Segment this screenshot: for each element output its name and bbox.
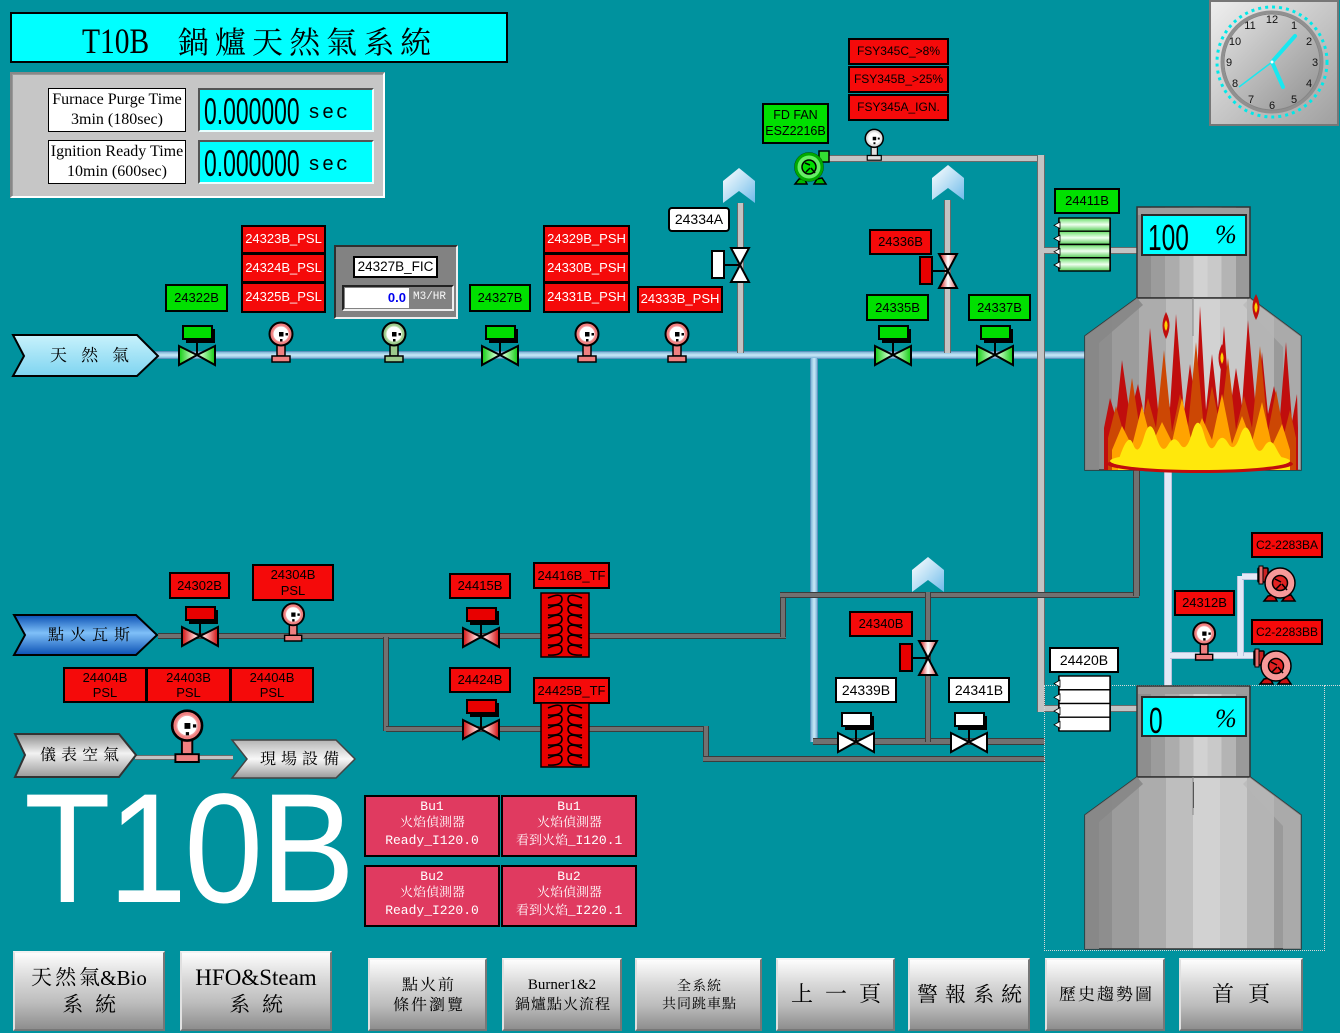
svg-text:2: 2 xyxy=(1306,36,1312,48)
svg-text:3: 3 xyxy=(1312,57,1318,69)
svg-text:1: 1 xyxy=(1291,20,1297,32)
svg-text:4: 4 xyxy=(1306,78,1312,90)
svg-text:9: 9 xyxy=(1226,57,1232,69)
svg-text:12: 12 xyxy=(1266,14,1278,26)
svg-text:6: 6 xyxy=(1269,100,1275,112)
svg-text:5: 5 xyxy=(1291,94,1297,106)
svg-text:11: 11 xyxy=(1244,20,1255,32)
svg-text:8: 8 xyxy=(1232,78,1238,90)
svg-text:7: 7 xyxy=(1248,94,1254,106)
svg-text:10: 10 xyxy=(1229,36,1241,48)
